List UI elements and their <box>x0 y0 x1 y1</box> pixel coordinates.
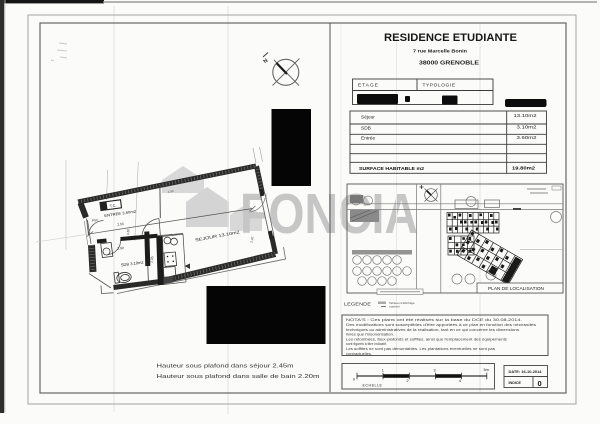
svg-text:SDB: SDB <box>361 126 371 132</box>
svg-text:2: 2 <box>407 379 409 383</box>
svg-text:ECHELLE: ECHELLE <box>363 384 383 388</box>
svg-text:Entrée: Entrée <box>361 136 375 142</box>
svg-text:3.60m2: 3.60m2 <box>517 135 537 141</box>
svg-text:1: 1 <box>382 369 384 373</box>
svg-text:matériel: matériel <box>389 305 400 309</box>
svg-text:0: 0 <box>538 379 542 388</box>
svg-text:Les soffites ne sont pas démon: Les soffites ne sont pas démontables. Le… <box>346 347 495 351</box>
svg-text:Hauteur sous plafond dans: Hauteur sous plafond dans séjour 2.45m <box>157 363 294 369</box>
svg-text:4: 4 <box>459 379 461 383</box>
svg-text:Des modifications sont suscept: Des modifications sont susceptibles d'êt… <box>346 323 536 327</box>
svg-text:38000 GRENOBLE: 38000 GRENOBLE <box>419 61 479 67</box>
svg-text:techniques ou administratives: techniques ou administratives de la réal… <box>346 328 519 332</box>
svg-text:LEGENDE: LEGENDE <box>344 302 371 307</box>
svg-text:5m: 5m <box>484 368 489 372</box>
svg-text:2.35: 2.35 <box>150 256 155 263</box>
svg-text:13.10m2: 13.10m2 <box>514 113 537 119</box>
svg-text:Les retombées, faux-plafonds: Les retombées, faux-plafonds et soffites… <box>346 337 507 341</box>
svg-text:contractuelles.: contractuelles. <box>346 352 372 356</box>
svg-text:TYPOLOGIE: TYPOLOGIE <box>423 82 456 88</box>
svg-text:3.10m2: 3.10m2 <box>517 125 537 131</box>
svg-text:sont figurés à titre indicatif: sont figurés à titre indicatif. <box>346 342 387 346</box>
svg-text:DATE: 16-10-2014: DATE: 16-10-2014 <box>509 370 543 374</box>
svg-text:RESIDENCE ETUDIANTE: RESIDENCE ETUDIANTE <box>384 32 517 44</box>
svg-text:3: 3 <box>434 369 436 373</box>
svg-text:7 rue Marcelle Bonin: 7 rue Marcelle Bonin <box>413 49 467 55</box>
svg-text:0: 0 <box>353 378 355 382</box>
svg-text:INDICE: INDICE <box>509 381 522 385</box>
svg-text:ETAGE: ETAGE <box>358 82 379 88</box>
svg-text:PLAN DE LOCALISATION: PLAN DE LOCALISATION <box>488 286 544 291</box>
svg-text:0.60: 0.60 <box>126 228 130 235</box>
svg-text:livrés que l'insonorisation.: livrés que l'insonorisation. <box>346 333 394 337</box>
svg-text:NOTA'S : Ces plans ont été ré: NOTA'S : Ces plans ont été réalisés sur … <box>346 318 522 322</box>
svg-text:2.90: 2.90 <box>117 246 124 251</box>
svg-text:19.80m2: 19.80m2 <box>512 166 535 172</box>
svg-text:Hauteur sous plafond dans: Hauteur sous plafond dans salle de bain … <box>157 374 320 380</box>
svg-text:SURFACE HABITABLE m2: SURFACE HABITABLE m2 <box>359 166 424 172</box>
svg-text:Séjour: Séjour <box>361 115 375 121</box>
